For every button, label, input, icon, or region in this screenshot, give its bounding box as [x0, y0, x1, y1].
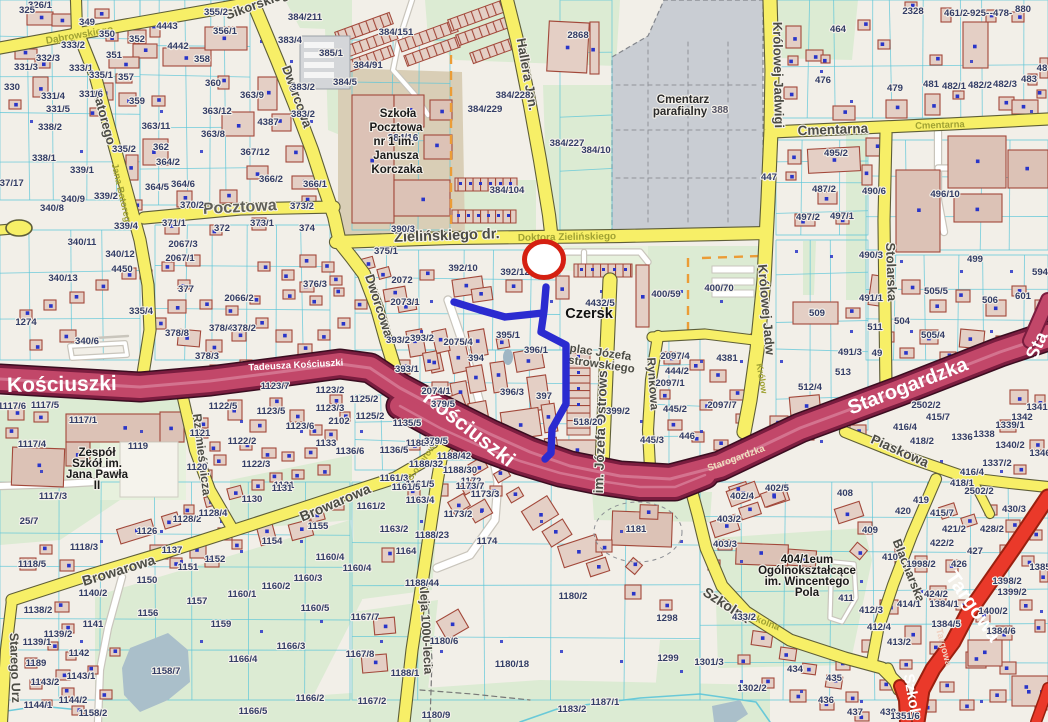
svg-text:2067/1: 2067/1: [165, 253, 195, 264]
svg-text:1117/5: 1117/5: [31, 400, 60, 411]
svg-text:362: 362: [153, 142, 169, 153]
svg-text:1339/1: 1339/1: [995, 420, 1025, 431]
svg-text:412/3: 412/3: [859, 605, 883, 616]
svg-text:1167/2: 1167/2: [358, 696, 387, 707]
svg-text:-478-: -478-: [990, 8, 1012, 19]
svg-text:4442: 4442: [167, 41, 188, 52]
svg-text:1150: 1150: [137, 575, 158, 586]
svg-text:1180/9: 1180/9: [422, 710, 451, 721]
svg-text:1128/2: 1128/2: [173, 514, 202, 525]
svg-text:2067/3: 2067/3: [168, 239, 197, 250]
svg-text:1141: 1141: [83, 619, 104, 630]
svg-text:384/211: 384/211: [288, 12, 323, 23]
svg-text:1160/3: 1160/3: [294, 573, 323, 584]
svg-text:403/3: 403/3: [713, 539, 737, 550]
svg-text:4387: 4387: [257, 117, 278, 128]
svg-text:352: 352: [129, 34, 145, 45]
svg-text:499: 499: [967, 254, 983, 265]
svg-text:360: 360: [205, 78, 221, 89]
svg-text:379/5: 379/5: [424, 436, 449, 447]
svg-text:433/2: 433/2: [732, 612, 756, 623]
svg-text:1174: 1174: [477, 536, 498, 547]
svg-text:355/2: 355/2: [204, 7, 228, 18]
svg-text:428/2: 428/2: [980, 524, 1004, 535]
svg-text:1180/2: 1180/2: [559, 591, 588, 602]
svg-text:1120: 1120: [187, 462, 208, 473]
svg-text:1340/2: 1340/2: [995, 440, 1024, 451]
svg-text:393/2: 393/2: [386, 335, 410, 346]
svg-text:356/1: 356/1: [213, 26, 238, 37]
svg-text:444/2: 444/2: [665, 366, 689, 377]
svg-text:4450: 4450: [111, 264, 132, 275]
svg-text:1117/6: 1117/6: [0, 401, 26, 412]
svg-text:1399/2: 1399/2: [997, 587, 1026, 598]
svg-text:363/8: 363/8: [201, 129, 226, 140]
svg-text:1118/3: 1118/3: [70, 542, 98, 553]
svg-text:482/1: 482/1: [942, 81, 967, 92]
svg-text:1180/6: 1180/6: [430, 636, 459, 647]
svg-text:1160/1: 1160/1: [228, 589, 257, 600]
svg-text:1183/2: 1183/2: [558, 704, 587, 715]
svg-text:II: II: [94, 480, 100, 492]
svg-text:1121: 1121: [190, 428, 211, 439]
svg-text:1167/7: 1167/7: [351, 612, 380, 623]
svg-text:416/4: 416/4: [960, 467, 985, 478]
svg-text:1126: 1126: [137, 526, 158, 537]
svg-text:1128/4: 1128/4: [199, 508, 228, 519]
svg-text:1298: 1298: [656, 613, 678, 624]
svg-text:2097/1: 2097/1: [655, 378, 685, 389]
svg-text:1166/5: 1166/5: [239, 706, 268, 717]
svg-text:1143/2: 1143/2: [31, 677, 60, 688]
svg-text:2502/2: 2502/2: [911, 400, 940, 411]
svg-text:2072: 2072: [391, 275, 412, 286]
svg-text:359: 359: [129, 96, 145, 107]
svg-text:384/91: 384/91: [353, 60, 383, 71]
svg-text:364/5: 364/5: [145, 182, 170, 193]
svg-text:377: 377: [178, 284, 194, 295]
svg-text:482/2: 482/2: [968, 80, 992, 91]
svg-text:384/229: 384/229: [468, 104, 503, 115]
svg-text:1385: 1385: [1029, 562, 1048, 573]
svg-text:1117/1: 1117/1: [69, 415, 98, 426]
svg-text:400/59: 400/59: [651, 289, 680, 300]
svg-text:1152: 1152: [205, 554, 226, 565]
svg-text:378/4: 378/4: [209, 323, 234, 334]
svg-text:1187/1: 1187/1: [591, 697, 620, 708]
svg-text:376/3: 376/3: [303, 279, 327, 290]
svg-text:1133: 1133: [316, 438, 337, 449]
svg-text:Cmentarna: Cmentarna: [797, 121, 868, 138]
svg-text:1166/4: 1166/4: [229, 654, 258, 665]
svg-text:594: 594: [1032, 267, 1048, 278]
svg-text:436: 436: [818, 695, 834, 706]
svg-text:1167/8: 1167/8: [346, 649, 375, 660]
svg-text:1122/5: 1122/5: [209, 401, 238, 412]
svg-text:1400/2: 1400/2: [978, 606, 1007, 617]
svg-text:Cmentarz: Cmentarz: [657, 94, 710, 106]
svg-text:403/2: 403/2: [717, 514, 741, 525]
svg-text:378/2: 378/2: [232, 323, 256, 334]
svg-text:402/4: 402/4: [730, 491, 755, 502]
svg-text:1156: 1156: [138, 608, 159, 619]
svg-text:414/1: 414/1: [897, 599, 922, 610]
svg-text:340/9: 340/9: [61, 194, 85, 205]
svg-text:1299: 1299: [657, 653, 678, 664]
svg-text:1123/5: 1123/5: [257, 406, 286, 417]
svg-text:1131: 1131: [272, 483, 293, 494]
svg-text:1180/18: 1180/18: [495, 659, 530, 670]
svg-text:378/3: 378/3: [195, 351, 219, 362]
svg-text:Korczaka: Korczaka: [371, 164, 423, 176]
svg-text:1155: 1155: [308, 521, 329, 532]
svg-text:388: 388: [712, 105, 729, 116]
svg-text:1160/2: 1160/2: [262, 581, 291, 592]
svg-text:1122/2: 1122/2: [228, 436, 257, 447]
svg-text:2097/7: 2097/7: [707, 400, 736, 411]
svg-text:383/2: 383/2: [291, 109, 315, 120]
svg-text:491/1: 491/1: [859, 293, 884, 304]
svg-text:497/1: 497/1: [830, 211, 855, 222]
svg-text:1139/1: 1139/1: [23, 637, 52, 648]
svg-text:366/2: 366/2: [259, 174, 283, 185]
svg-text:332/3: 332/3: [36, 53, 60, 64]
svg-text:491/3: 491/3: [838, 347, 862, 358]
svg-text:331/5: 331/5: [46, 104, 71, 115]
svg-text:396/3: 396/3: [500, 387, 524, 398]
svg-text:490/6: 490/6: [862, 186, 886, 197]
svg-text:350: 350: [99, 29, 115, 40]
svg-text:518/20: 518/20: [573, 417, 602, 428]
svg-text:1351/6: 1351/6: [890, 711, 919, 722]
svg-text:372: 372: [214, 223, 230, 234]
svg-text:4432/5: 4432/5: [585, 298, 615, 309]
svg-text:384/151: 384/151: [379, 27, 414, 38]
svg-text:506: 506: [982, 295, 998, 306]
svg-text:370/2: 370/2: [180, 200, 204, 211]
svg-text:509: 509: [809, 308, 825, 319]
svg-text:1135/5: 1135/5: [393, 418, 422, 429]
svg-text:1188/30: 1188/30: [443, 465, 477, 476]
svg-text:1137: 1137: [162, 545, 183, 556]
svg-text:1998/2: 1998/2: [906, 559, 935, 570]
svg-text:426: 426: [951, 559, 967, 570]
svg-text:505/4: 505/4: [921, 330, 946, 341]
svg-text:384/228: 384/228: [496, 90, 531, 101]
svg-text:364/6: 364/6: [171, 179, 195, 190]
svg-text:487/2: 487/2: [812, 184, 836, 195]
svg-text:418/2: 418/2: [910, 436, 934, 447]
svg-text:415/7: 415/7: [930, 508, 954, 519]
svg-text:25/7: 25/7: [20, 516, 39, 527]
svg-text:2074/1: 2074/1: [421, 386, 451, 397]
svg-text:1398/2: 1398/2: [992, 576, 1021, 587]
svg-text:495/2: 495/2: [824, 148, 848, 159]
svg-text:340/6: 340/6: [75, 336, 99, 347]
svg-text:420: 420: [895, 506, 911, 517]
svg-text:446: 446: [679, 431, 695, 442]
svg-text:2073/1: 2073/1: [390, 297, 420, 308]
svg-text:339/2: 339/2: [94, 191, 118, 202]
svg-text:1122/3: 1122/3: [242, 459, 271, 470]
svg-text:464: 464: [830, 24, 847, 35]
svg-text:Doktora Zielińskiego: Doktora Zielińskiego: [518, 231, 617, 244]
svg-text:2075/4: 2075/4: [443, 337, 473, 348]
svg-text:1119: 1119: [128, 441, 148, 452]
svg-text:447: 447: [761, 172, 777, 183]
svg-text:1123/7: 1123/7: [261, 381, 290, 392]
svg-text:1130: 1130: [242, 494, 263, 505]
svg-text:335/4: 335/4: [129, 306, 154, 317]
svg-text:421/2: 421/2: [942, 524, 966, 535]
svg-text:1189: 1189: [26, 658, 47, 669]
svg-text:1337/2: 1337/2: [982, 458, 1011, 469]
svg-text:418/1: 418/1: [950, 478, 975, 489]
svg-text:378/8: 378/8: [165, 328, 190, 339]
svg-text:331/6: 331/6: [79, 89, 103, 100]
svg-text:422/2: 422/2: [930, 538, 954, 549]
svg-text:363/12: 363/12: [202, 106, 231, 117]
svg-text:880: 880: [1015, 4, 1031, 15]
svg-text:340/12: 340/12: [105, 249, 134, 260]
svg-text:335/1: 335/1: [89, 70, 114, 81]
svg-text:351: 351: [106, 50, 123, 61]
svg-text:1166/3: 1166/3: [277, 641, 306, 652]
svg-text:1181: 1181: [626, 524, 647, 535]
svg-text:1157: 1157: [187, 596, 208, 607]
svg-text:497/2: 497/2: [796, 212, 820, 223]
svg-text:1384/1: 1384/1: [929, 599, 959, 610]
svg-text:1188/32: 1188/32: [409, 459, 443, 470]
svg-text:2102: 2102: [328, 416, 349, 427]
svg-text:1161/5: 1161/5: [392, 482, 421, 493]
svg-text:367/12: 367/12: [240, 147, 269, 158]
svg-text:601: 601: [1015, 291, 1032, 302]
svg-text:1123/2: 1123/2: [316, 385, 345, 396]
svg-text:399/2: 399/2: [606, 406, 630, 417]
svg-text:1384/5: 1384/5: [931, 619, 961, 630]
svg-text:1125/2: 1125/2: [350, 394, 379, 405]
svg-text:392/10: 392/10: [448, 263, 477, 274]
svg-text:1117/3: 1117/3: [39, 491, 67, 502]
svg-text:383/2: 383/2: [291, 82, 315, 93]
svg-text:373/2: 373/2: [290, 201, 314, 212]
svg-text:1144/1: 1144/1: [24, 700, 53, 711]
svg-text:338/1: 338/1: [32, 153, 57, 164]
svg-text:445/3: 445/3: [640, 435, 664, 446]
svg-text:Królowej Jadwigi: Królowej Jadwigi: [770, 22, 787, 128]
svg-text:496/10: 496/10: [930, 189, 959, 200]
svg-text:384/227: 384/227: [550, 138, 585, 149]
svg-text:2097/4: 2097/4: [660, 351, 690, 362]
svg-text:1144/2: 1144/2: [59, 695, 88, 706]
svg-text:1188/44: 1188/44: [405, 578, 440, 589]
svg-text:395/1: 395/1: [496, 330, 521, 341]
svg-text:366/1: 366/1: [303, 179, 328, 190]
svg-text:325: 325: [19, 5, 36, 16]
svg-text:1154: 1154: [262, 536, 283, 547]
svg-text:2328: 2328: [902, 6, 924, 17]
svg-text:330: 330: [4, 82, 20, 93]
svg-text:340/13: 340/13: [48, 273, 77, 284]
svg-text:1159: 1159: [211, 619, 232, 630]
svg-text:Kościuszki: Kościuszki: [7, 372, 117, 397]
svg-text:331/3: 331/3: [14, 62, 38, 73]
svg-text:333/2: 333/2: [61, 40, 85, 51]
svg-text:48: 48: [1037, 63, 1048, 74]
svg-text:1158/7: 1158/7: [152, 666, 181, 677]
svg-text:374: 374: [299, 223, 316, 234]
svg-text:1138/2: 1138/2: [24, 605, 53, 616]
svg-text:511: 511: [867, 322, 883, 333]
svg-text:1341: 1341: [1026, 402, 1048, 413]
svg-text:461/2: 461/2: [944, 8, 968, 19]
svg-text:384/5: 384/5: [333, 77, 358, 88]
svg-text:1160/4: 1160/4: [343, 563, 372, 574]
svg-text:1142: 1142: [69, 648, 90, 659]
svg-text:Stolarska: Stolarska: [883, 242, 900, 302]
svg-text:476: 476: [815, 75, 831, 86]
svg-text:379/5: 379/5: [431, 399, 456, 410]
svg-text:416/4: 416/4: [893, 422, 918, 433]
svg-text:363/11: 363/11: [142, 121, 171, 132]
svg-text:Janusza: Janusza: [373, 150, 419, 162]
svg-text:1336: 1336: [951, 432, 972, 443]
svg-text:1125/2: 1125/2: [356, 411, 385, 422]
svg-text:412/4: 412/4: [867, 622, 892, 633]
svg-text:340/11: 340/11: [68, 237, 97, 248]
svg-text:445/2: 445/2: [663, 404, 687, 415]
svg-text:Szkoła: Szkoła: [380, 108, 417, 120]
svg-text:1143/1: 1143/1: [67, 671, 96, 682]
svg-text:1384/6: 1384/6: [986, 626, 1015, 637]
svg-text:Starego Urz: Starego Urz: [7, 633, 23, 704]
svg-text:400/70: 400/70: [704, 283, 733, 294]
svg-text:410: 410: [882, 552, 898, 563]
svg-text:1166/2: 1166/2: [296, 693, 325, 704]
svg-text:1302/2: 1302/2: [737, 683, 766, 694]
svg-text:parafialny: parafialny: [653, 106, 708, 118]
svg-text:4443: 4443: [156, 21, 177, 32]
svg-text:364/2: 364/2: [156, 157, 180, 168]
svg-text:Pola: Pola: [795, 587, 820, 599]
svg-text:331/4: 331/4: [41, 91, 66, 102]
svg-text:504: 504: [894, 316, 911, 327]
svg-text:512/4: 512/4: [798, 382, 823, 393]
svg-text:1151: 1151: [178, 562, 199, 573]
svg-text:419: 419: [913, 495, 929, 506]
svg-text:1164: 1164: [396, 546, 417, 557]
svg-text:375/1: 375/1: [374, 246, 399, 257]
svg-text:363/9: 363/9: [240, 90, 264, 101]
svg-text:411: 411: [838, 593, 854, 604]
svg-text:434: 434: [787, 664, 804, 675]
svg-text:349: 349: [79, 17, 95, 28]
svg-text:2066/2: 2066/2: [224, 293, 253, 304]
svg-text:373/1: 373/1: [250, 218, 275, 229]
svg-text:1346: 1346: [1029, 448, 1048, 459]
svg-text:390/3: 390/3: [391, 224, 415, 235]
svg-text:1123/3: 1123/3: [316, 403, 345, 414]
svg-text:383/4: 383/4: [278, 35, 303, 46]
svg-text:371/1: 371/1: [162, 218, 187, 229]
svg-text:413/2: 413/2: [887, 637, 911, 648]
svg-text:1158/2: 1158/2: [79, 708, 108, 719]
svg-text:415/7: 415/7: [926, 412, 950, 423]
svg-text:49: 49: [872, 348, 883, 359]
svg-text:1301/3: 1301/3: [694, 657, 723, 668]
svg-text:1117/4: 1117/4: [18, 439, 47, 450]
svg-text:393/1: 393/1: [395, 364, 420, 375]
svg-text:1173/2: 1173/2: [444, 509, 473, 520]
svg-text:479: 479: [887, 83, 903, 94]
svg-text:1161/2: 1161/2: [357, 501, 386, 512]
svg-text:396/1: 396/1: [524, 345, 549, 356]
svg-text:384/104: 384/104: [490, 185, 525, 196]
svg-text:1173/7: 1173/7: [456, 481, 485, 492]
svg-text:nr 1 im.: nr 1 im.: [374, 136, 415, 148]
svg-text:513: 513: [835, 367, 851, 378]
svg-text:339/1: 339/1: [70, 165, 95, 176]
svg-text:437: 437: [847, 707, 863, 718]
svg-text:335/2: 335/2: [112, 144, 136, 155]
svg-text:-925-: -925-: [967, 8, 989, 19]
svg-text:490/3: 490/3: [859, 250, 883, 261]
svg-text:1274: 1274: [15, 317, 37, 328]
svg-text:1188/23: 1188/23: [415, 530, 449, 541]
svg-text:4381: 4381: [716, 353, 738, 364]
svg-text:1338: 1338: [973, 429, 995, 440]
svg-text:481: 481: [923, 79, 940, 90]
svg-text:397: 397: [536, 391, 552, 402]
svg-text:1136/5: 1136/5: [380, 445, 409, 456]
svg-text:394: 394: [468, 353, 485, 364]
svg-text:384/10: 384/10: [581, 145, 610, 156]
svg-text:393/2: 393/2: [410, 333, 434, 344]
svg-text:505/5: 505/5: [924, 286, 949, 297]
svg-text:Cmentarna: Cmentarna: [915, 119, 966, 132]
svg-text:402/5: 402/5: [765, 483, 790, 494]
svg-text:1118/5: 1118/5: [18, 559, 47, 570]
svg-text:358: 358: [194, 54, 211, 65]
svg-text:1163/4: 1163/4: [406, 495, 435, 506]
svg-text:430/3: 430/3: [1002, 504, 1026, 515]
svg-text:385/1: 385/1: [319, 48, 344, 59]
svg-text:2868: 2868: [567, 30, 589, 41]
svg-text:1136/6: 1136/6: [336, 446, 365, 457]
svg-text:357: 357: [118, 72, 134, 83]
svg-text:427: 427: [967, 546, 983, 557]
svg-text:340/8: 340/8: [40, 203, 65, 214]
svg-text:409: 409: [862, 525, 878, 536]
svg-text:483: 483: [1021, 74, 1037, 85]
svg-text:1160/5: 1160/5: [301, 603, 330, 614]
svg-text:338/2: 338/2: [38, 122, 62, 133]
svg-text:1163/2: 1163/2: [380, 524, 409, 535]
svg-text:435: 435: [826, 673, 843, 684]
svg-text:1123/6: 1123/6: [286, 421, 315, 432]
svg-text:1188/1: 1188/1: [391, 668, 420, 679]
svg-text:408: 408: [837, 488, 854, 499]
svg-text:337/17: 337/17: [0, 178, 24, 189]
svg-text:1140/2: 1140/2: [79, 588, 108, 599]
svg-text:482/3: 482/3: [993, 79, 1017, 90]
svg-text:1160/4: 1160/4: [316, 552, 345, 563]
svg-text:339/4: 339/4: [114, 221, 139, 232]
